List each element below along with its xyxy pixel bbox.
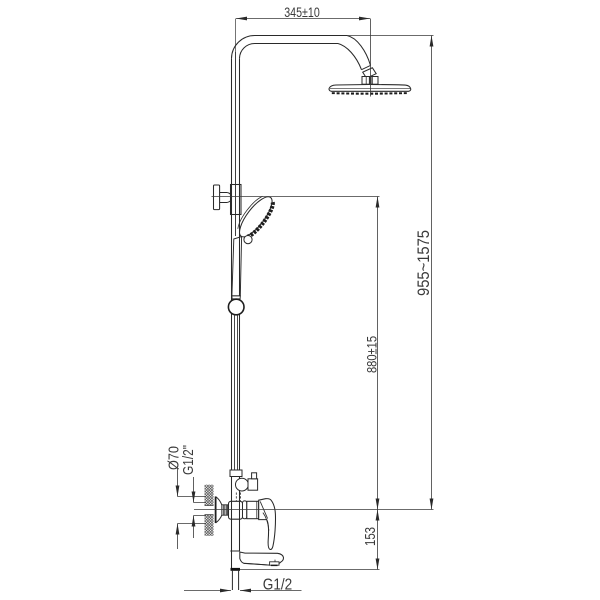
svg-text:955~1575: 955~1575 [414,230,433,296]
svg-text:G1/2": G1/2" [180,445,197,475]
svg-text:153: 153 [363,527,379,546]
svg-text:G1/2: G1/2 [263,576,293,593]
svg-text:880±15: 880±15 [363,336,379,373]
svg-text:345±10: 345±10 [284,5,320,20]
